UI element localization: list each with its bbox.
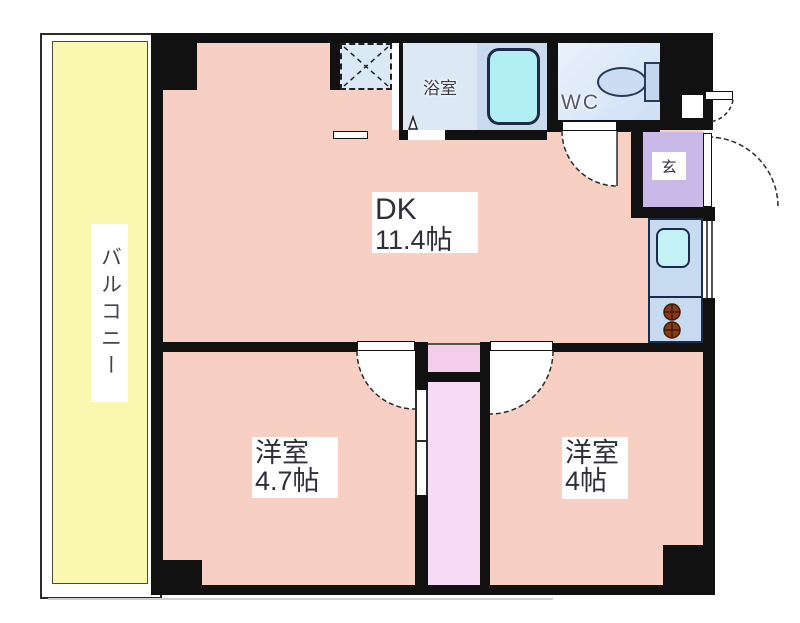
dk-size: 11.4帖 bbox=[375, 226, 475, 254]
entrance-label: 玄 bbox=[652, 152, 686, 180]
bathroom-door-leaf bbox=[333, 131, 368, 139]
wall-segment bbox=[631, 207, 715, 218]
sliding-door-tick bbox=[415, 440, 428, 442]
wall-segment bbox=[151, 33, 163, 595]
bathroom-area: 浴室 bbox=[403, 43, 477, 130]
bedroom2-door-leaf bbox=[490, 341, 553, 351]
entrance-door-arc-icon bbox=[708, 137, 778, 207]
wall-segment bbox=[415, 372, 490, 382]
service-door-gap bbox=[682, 95, 703, 118]
wall-segment bbox=[547, 43, 558, 120]
bathroom-door-gap bbox=[408, 130, 445, 140]
bedroom1-room-label: 洋室 4.7帖 bbox=[252, 437, 338, 498]
toilet-tank-icon bbox=[644, 62, 661, 102]
wc-label: WC bbox=[561, 91, 600, 115]
floorplan: 浴室 WC 玄 bbox=[0, 0, 800, 623]
wall-segment bbox=[151, 585, 715, 595]
wc-door-leaf bbox=[562, 121, 617, 131]
wall-segment bbox=[663, 545, 715, 585]
wall-segment bbox=[151, 33, 713, 43]
wall-gap bbox=[392, 43, 399, 130]
kitchen-window-icon bbox=[703, 219, 715, 300]
bedroom2-room-label: 洋室 4帖 bbox=[562, 437, 628, 499]
wall-segment bbox=[415, 342, 428, 390]
window-line bbox=[711, 221, 713, 298]
bedroom2-name: 洋室 bbox=[565, 439, 625, 467]
bedroom1-name: 洋室 bbox=[255, 439, 335, 467]
bedroom1-size: 4.7帖 bbox=[255, 467, 335, 495]
wall-segment bbox=[163, 342, 357, 352]
wall-segment bbox=[151, 33, 197, 90]
balcony-label: バルコニー bbox=[91, 224, 128, 402]
toilet-icon bbox=[597, 67, 647, 97]
wall-segment bbox=[330, 43, 340, 90]
wall-segment bbox=[631, 130, 643, 210]
kitchen-sink-icon bbox=[656, 228, 690, 268]
washing-machine-space-icon bbox=[340, 43, 392, 90]
sliding-door-icon bbox=[415, 390, 428, 495]
wall-segment bbox=[415, 495, 428, 585]
wall-segment bbox=[553, 343, 715, 352]
kitchen-divider bbox=[648, 296, 703, 298]
bathroom-label: 浴室 bbox=[423, 74, 457, 99]
window-line bbox=[706, 221, 708, 298]
closet-area bbox=[428, 382, 480, 585]
service-door-leaf bbox=[705, 91, 733, 100]
bedroom2-size: 4帖 bbox=[565, 467, 625, 495]
bedroom1-door-leaf bbox=[357, 341, 415, 351]
niche-area bbox=[428, 343, 480, 372]
wall-segment bbox=[399, 43, 403, 140]
bathtub-icon bbox=[487, 48, 540, 125]
ground-line bbox=[48, 598, 553, 600]
entrance-door-leaf bbox=[703, 133, 712, 207]
dk-room-label: DK 11.4帖 bbox=[372, 192, 478, 253]
wall-segment bbox=[163, 560, 202, 585]
dk-name: DK bbox=[375, 194, 475, 226]
